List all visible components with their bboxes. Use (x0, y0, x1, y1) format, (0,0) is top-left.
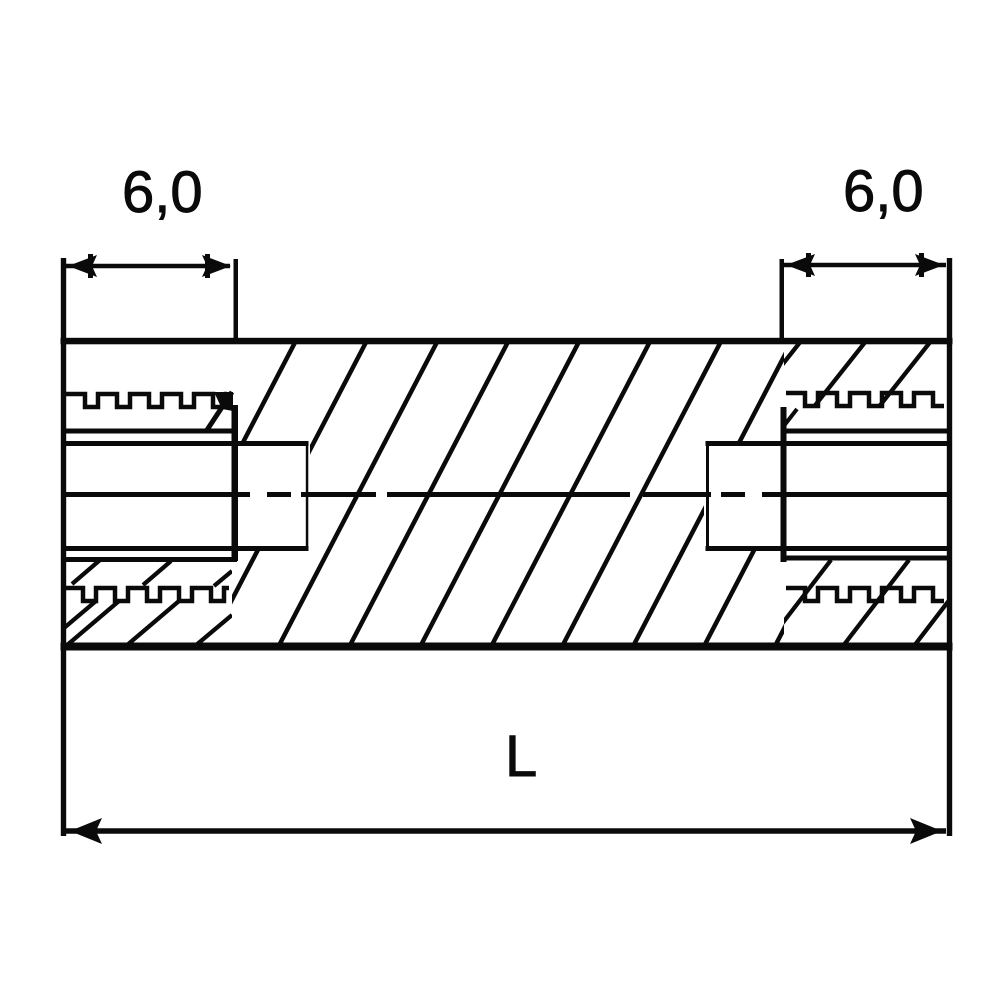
svg-text:L: L (505, 724, 537, 789)
svg-text:6,0: 6,0 (843, 159, 924, 224)
svg-text:6,0: 6,0 (122, 160, 203, 225)
